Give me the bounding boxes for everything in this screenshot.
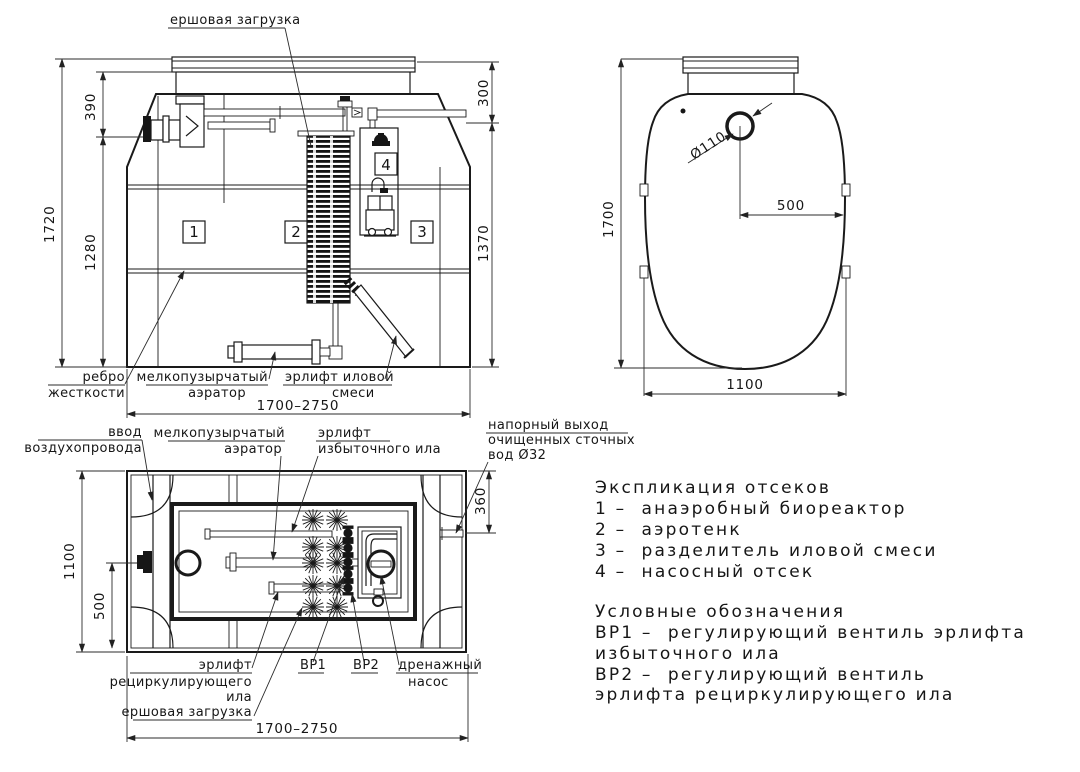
tank-lid-side xyxy=(683,57,798,73)
legend-section-1: 1 – анаэробный биореактор xyxy=(595,499,907,519)
side-view: Ø110 1700 500 1100 xyxy=(601,57,850,396)
svg-text:насос: насос xyxy=(408,675,449,690)
vent-dot xyxy=(681,109,686,114)
svg-text:очищенных сточных: очищенных сточных xyxy=(488,433,635,448)
dim-1370: 1370 xyxy=(472,123,499,367)
legend-symbol-1: ВР1 – регулирующий вентиль эрлифта xyxy=(595,623,1026,643)
technical-drawing: 4 xyxy=(0,0,1080,772)
tank-side-outline xyxy=(645,94,845,369)
compartment-2-tag: 2 xyxy=(291,223,301,241)
svg-text:избыточного ила: избыточного ила xyxy=(318,442,441,457)
svg-text:ВР2: ВР2 xyxy=(353,658,379,673)
svg-text:жесткости: жесткости xyxy=(48,386,125,401)
dim-inlet-drop: 390 xyxy=(83,93,99,121)
legend-symbol-2b: эрлифта рециркулирующего ила xyxy=(595,685,955,705)
svg-text:эрлифт: эрлифт xyxy=(318,426,371,441)
dim-1100-plan: 1100 xyxy=(62,471,125,652)
legend-symbol-1b: избыточного ила xyxy=(595,644,781,664)
svg-text:мелкопузырчатый: мелкопузырчатый xyxy=(154,426,285,441)
svg-text:ершовая загрузка: ершовая загрузка xyxy=(170,13,300,28)
drawing-svg: 4 xyxy=(0,0,1080,772)
dim-side-width: 1100 xyxy=(726,377,764,393)
dim-plan-length-range: 1700–2750 xyxy=(256,721,339,737)
svg-text:напорный выход: напорный выход xyxy=(488,418,609,433)
dim-plan-width: 1100 xyxy=(62,542,78,580)
dim-1280: 1280 xyxy=(83,137,103,367)
svg-text:дренажный: дренажный xyxy=(398,658,482,673)
legend: Экспликация отсеков 1 – анаэробный биоре… xyxy=(595,478,1026,705)
svg-text:смеси: смеси xyxy=(332,386,375,401)
svg-text:аэратор: аэратор xyxy=(224,442,282,457)
compartment-4-tag: 4 xyxy=(381,156,391,174)
dim-1100-side: 1100 xyxy=(644,377,846,394)
dim-total-height: 1720 xyxy=(42,205,58,243)
compartment-3-tag: 3 xyxy=(417,223,427,241)
legend-sections-title: Экспликация отсеков xyxy=(595,478,831,498)
dim-stub-offset: 500 xyxy=(92,592,108,620)
svg-text:вод Ø32: вод Ø32 xyxy=(488,448,546,463)
dim-outlet-drop: 300 xyxy=(476,79,492,107)
svg-text:ила: ила xyxy=(226,690,252,705)
dim-outlet-to-bottom: 1370 xyxy=(476,224,492,262)
legend-section-4: 4 – насосный отсек xyxy=(595,562,814,582)
svg-text:аэратор: аэратор xyxy=(188,386,246,401)
dim-inlet-to-bottom: 1280 xyxy=(83,233,99,271)
svg-text:мелкопузырчатый: мелкопузырчатый xyxy=(137,370,268,385)
svg-text:ВР1: ВР1 xyxy=(300,658,326,673)
svg-text:ребро: ребро xyxy=(83,370,125,385)
compartment-1-tag: 1 xyxy=(189,223,199,241)
svg-text:ввод: ввод xyxy=(108,425,142,440)
legend-symbols-title: Условные обозначения xyxy=(595,602,845,622)
svg-text:рециркулирующего: рециркулирующего xyxy=(110,675,252,690)
svg-text:воздухопровода: воздухопровода xyxy=(24,441,142,456)
legend-symbol-2: ВР2 – регулирующий вентиль xyxy=(595,665,926,685)
svg-text:эрлифт: эрлифт xyxy=(199,658,252,673)
pump-compartment-plan xyxy=(358,527,401,606)
dim-side-height: 1700 xyxy=(601,200,617,238)
front-view: 4 xyxy=(127,57,470,367)
plan-view xyxy=(127,471,466,652)
legend-section-2: 2 – аэротенк xyxy=(595,520,742,540)
svg-text:эрлифт иловой: эрлифт иловой xyxy=(285,370,394,385)
dim-length-range: 1700–2750 xyxy=(257,398,340,414)
svg-text:ершовая загрузка: ершовая загрузка xyxy=(122,705,252,720)
dim-hole-offset: 500 xyxy=(777,198,805,214)
legend-section-3: 3 – разделитель иловой смеси xyxy=(595,541,938,561)
dim-outlet-offset: 360 xyxy=(473,487,489,515)
